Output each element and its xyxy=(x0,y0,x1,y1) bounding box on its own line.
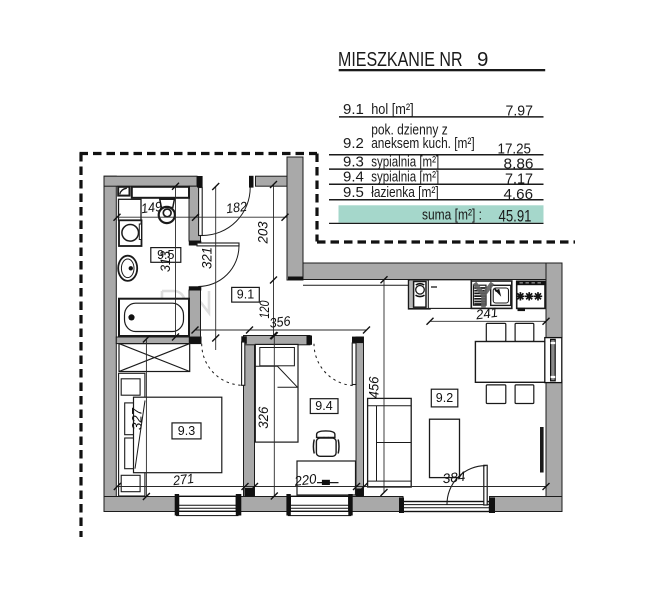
svg-text:120: 120 xyxy=(257,300,272,318)
svg-text:MIESZKANIE NR: MIESZKANIE NR xyxy=(338,48,463,71)
svg-text:149: 149 xyxy=(140,199,163,217)
svg-text:9.3: 9.3 xyxy=(178,424,195,438)
svg-text:9.4: 9.4 xyxy=(315,399,332,413)
svg-text:327: 327 xyxy=(129,408,144,430)
svg-text:321: 321 xyxy=(200,247,215,269)
svg-text:9.5: 9.5 xyxy=(343,184,364,201)
svg-text:182: 182 xyxy=(225,199,248,217)
svg-text:hol [m²]: hol [m²] xyxy=(371,101,414,118)
svg-text:220: 220 xyxy=(293,471,318,489)
svg-text:9.2: 9.2 xyxy=(436,391,453,405)
svg-text:384: 384 xyxy=(442,469,467,487)
svg-text:9.1: 9.1 xyxy=(343,101,364,118)
svg-text:aneksem kuch. [m²]: aneksem kuch. [m²] xyxy=(371,135,475,152)
svg-text:9.2: 9.2 xyxy=(343,135,364,152)
svg-text:271: 271 xyxy=(171,471,195,489)
svg-text:9: 9 xyxy=(477,48,488,71)
svg-text:203: 203 xyxy=(256,221,271,244)
svg-text:9.1: 9.1 xyxy=(237,288,254,302)
svg-text:456: 456 xyxy=(367,376,382,398)
svg-text:356: 356 xyxy=(269,313,292,331)
svg-text:326: 326 xyxy=(256,406,271,428)
svg-text:suma [m²] :: suma [m²] : xyxy=(422,206,482,223)
svg-text:241: 241 xyxy=(474,305,499,323)
svg-text:łazienka [m²]: łazienka [m²] xyxy=(371,184,439,201)
svg-text:313: 313 xyxy=(158,251,173,272)
